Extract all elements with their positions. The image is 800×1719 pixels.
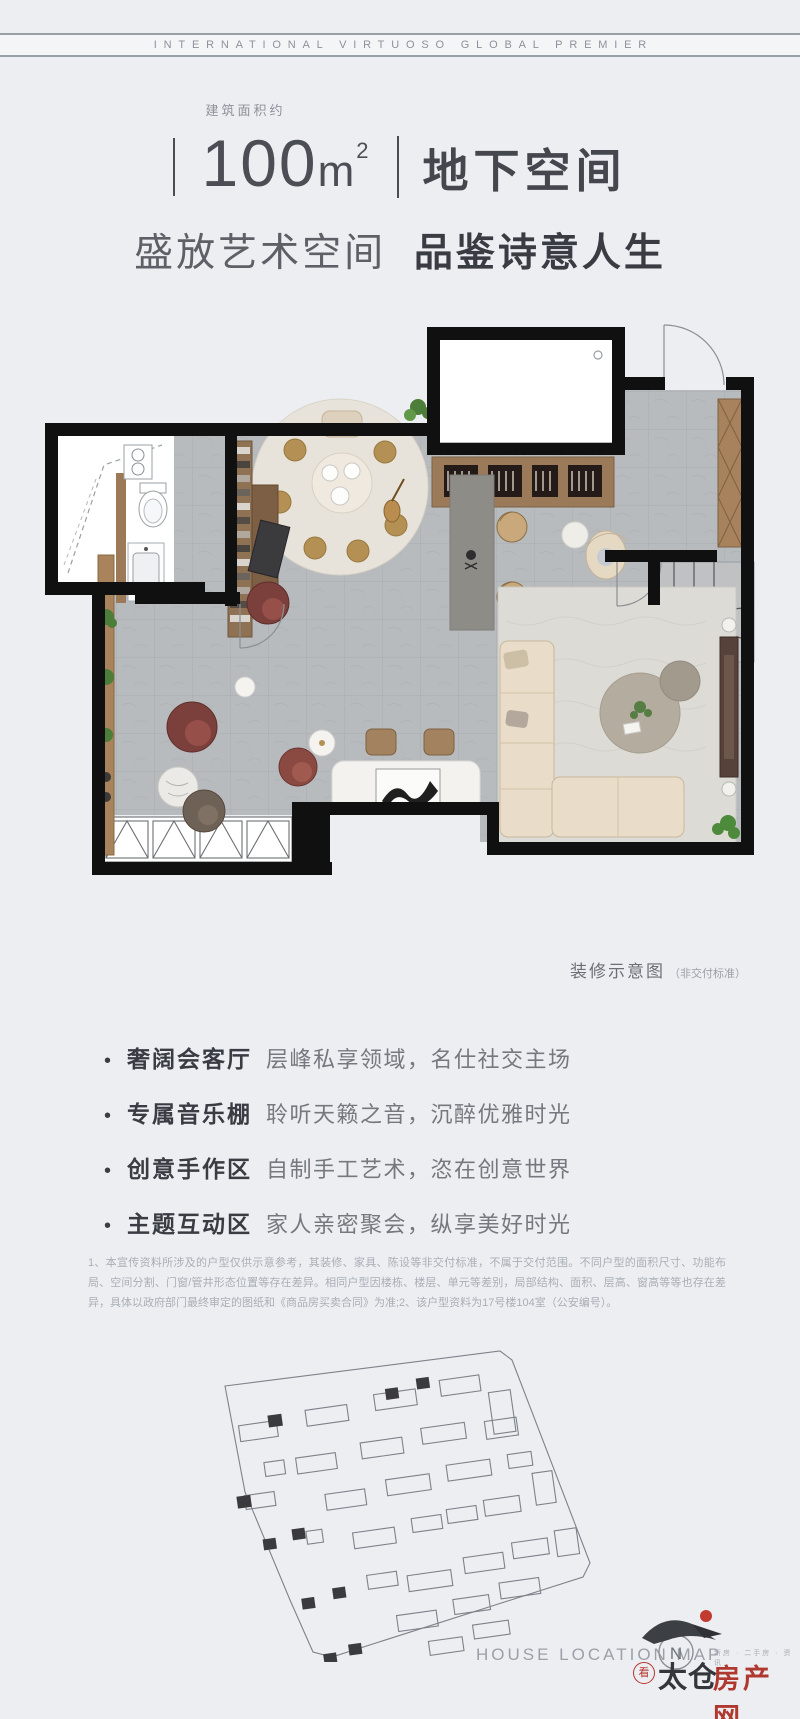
feature-item: • 专属音乐棚 聆听天籁之音，沉醉优雅时光	[104, 1095, 704, 1150]
red-sun-icon	[700, 1610, 712, 1622]
disclaimer-text: 1、本宣传资料所涉及的户型仅供示意参考，其装修、家具、陈设等非交付标准，不属于交…	[88, 1253, 726, 1313]
area-header: 建筑面积约 100m2 地下空间	[0, 100, 800, 202]
area-value: 100m2	[201, 121, 370, 202]
plan-caption-note: （非交付标准）	[669, 968, 746, 980]
pouf	[562, 522, 588, 548]
chair	[424, 729, 454, 755]
bullet-icon: •	[104, 1050, 111, 1073]
entry-cabinet	[718, 399, 742, 547]
site-boundary	[225, 1351, 590, 1657]
plan-caption-text: 装修示意图	[570, 962, 665, 981]
pillow	[505, 710, 529, 729]
space-name: 地下空间	[423, 140, 627, 202]
area-label: 建筑面积约	[205, 100, 370, 119]
subtitle: 盛放艺术空间 品鉴诗意人生	[0, 222, 800, 278]
feature-list: • 奢阔会客厅 层峰私享领域，名仕社交主场 • 专属音乐棚 聆听天籁之音，沉醉优…	[104, 1040, 704, 1260]
feature-item: • 主题互动区 家人亲密聚会，纵享美好时光	[104, 1205, 704, 1260]
feature-item: • 创意手作区 自制手工艺术，恣在创意世界	[104, 1150, 704, 1205]
sofa-vertical	[500, 641, 554, 837]
top-banner-text: INTERNATIONAL VIRTUOSO GLOBAL PREMIER	[147, 39, 653, 51]
bullet-icon: •	[104, 1215, 111, 1238]
bullet-icon: •	[104, 1105, 111, 1128]
storage-room	[438, 340, 612, 442]
logo-name: 太仓	[658, 1654, 718, 1696]
poster-page: INTERNATIONAL VIRTUOSO GLOBAL PREMIER 建筑…	[0, 0, 800, 1719]
chair	[366, 729, 396, 755]
logo-suffix: 房产网	[713, 1657, 800, 1719]
side-table	[660, 661, 700, 701]
header-divider-mid	[397, 136, 399, 198]
feature-item: • 奢阔会客厅 层峰私享领域，名仕社交主场	[104, 1040, 704, 1095]
subtitle-light: 盛放艺术空间	[134, 232, 386, 275]
stool	[497, 512, 527, 542]
floor-plan	[40, 315, 760, 875]
cooktop	[124, 445, 152, 479]
site-location-map	[150, 1332, 650, 1662]
logo-seal-icon: 看	[633, 1662, 655, 1684]
top-banner: INTERNATIONAL VIRTUOSO GLOBAL PREMIER	[0, 33, 800, 57]
subtitle-bold: 品鉴诗意人生	[414, 232, 666, 275]
bullet-icon: •	[104, 1160, 111, 1183]
plan-caption: 装修示意图（非交付标准）	[0, 957, 746, 982]
site-buildings	[232, 1364, 591, 1662]
highlighted-buildings	[224, 1377, 467, 1662]
header-divider-left	[173, 138, 175, 196]
